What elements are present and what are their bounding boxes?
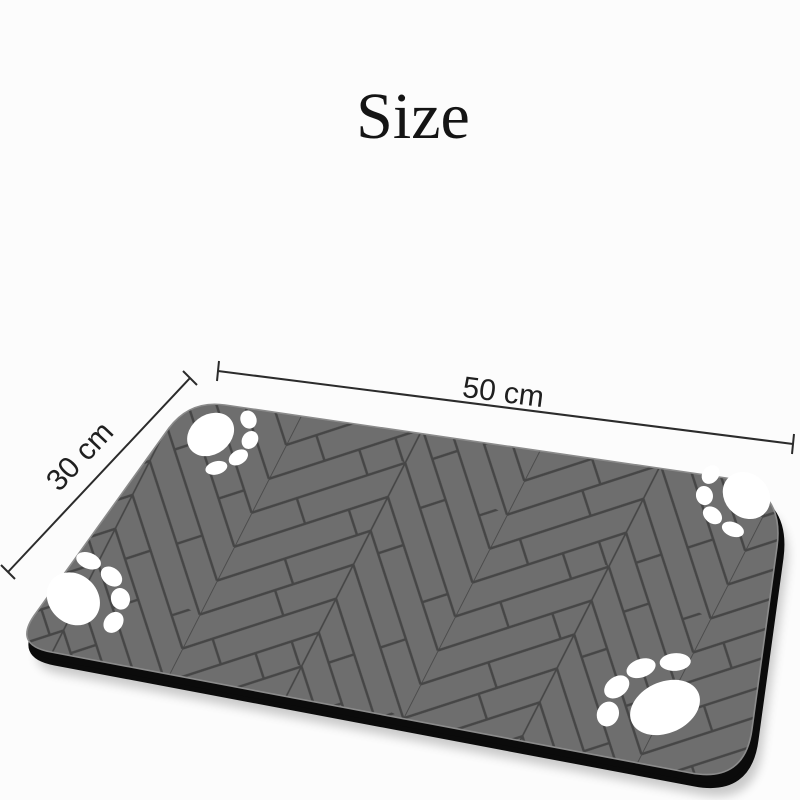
size-diagram: Size 50 cm 30 cm: [0, 0, 800, 800]
page-title: Size: [356, 80, 470, 153]
size-diagram-canvas: Size 50 cm 30 cm: [0, 0, 800, 800]
